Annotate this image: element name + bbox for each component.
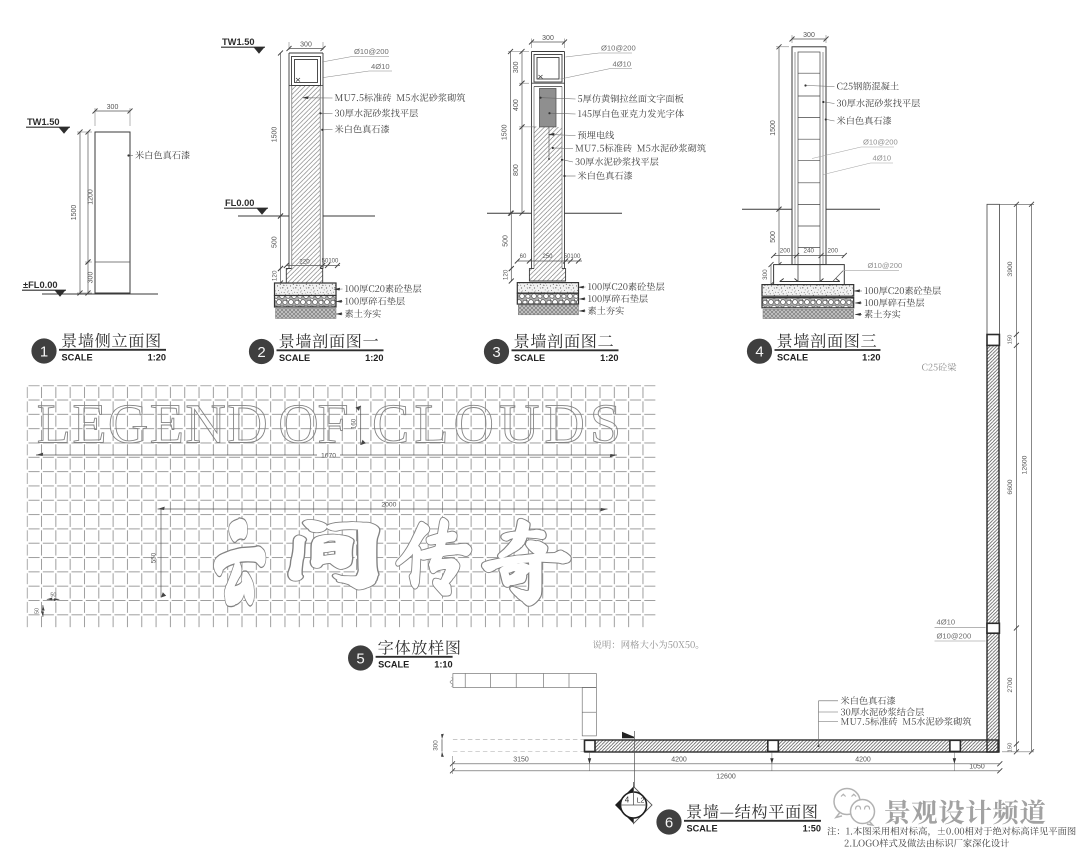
svg-text:500: 500 — [770, 231, 777, 243]
svg-text:1500: 1500 — [770, 120, 777, 136]
svg-text:120: 120 — [272, 270, 279, 281]
svg-text:150: 150 — [1008, 743, 1014, 753]
svg-text:1:20: 1:20 — [862, 353, 880, 363]
svg-text:3: 3 — [492, 344, 500, 361]
svg-text:1050: 1050 — [969, 764, 985, 771]
svg-text:250: 250 — [542, 254, 553, 260]
svg-text:240: 240 — [804, 248, 815, 255]
svg-text:6600: 6600 — [1007, 479, 1014, 494]
svg-text:4Ø10: 4Ø10 — [371, 62, 390, 71]
svg-text:60: 60 — [520, 254, 527, 260]
svg-text:4: 4 — [755, 344, 763, 361]
svg-text:50100: 50100 — [322, 259, 339, 265]
svg-text:OF: OF — [278, 394, 348, 456]
svg-text:12600: 12600 — [716, 773, 736, 780]
svg-text:4200: 4200 — [855, 757, 871, 764]
svg-text:300: 300 — [513, 61, 520, 73]
svg-text:2: 2 — [257, 344, 265, 361]
svg-text:2700: 2700 — [1007, 677, 1014, 692]
svg-text:150: 150 — [1008, 335, 1014, 345]
svg-text:Ø10@200: Ø10@200 — [868, 261, 903, 270]
svg-text:3900: 3900 — [1007, 261, 1014, 276]
svg-text:200: 200 — [827, 248, 838, 255]
svg-text:1200: 1200 — [88, 189, 95, 205]
svg-text:5: 5 — [356, 651, 364, 668]
svg-text:300: 300 — [300, 42, 312, 49]
svg-text:1500: 1500 — [71, 205, 78, 221]
svg-text:4: 4 — [625, 796, 630, 805]
svg-text:300: 300 — [107, 104, 119, 111]
svg-text:300: 300 — [88, 272, 95, 284]
svg-text:400: 400 — [513, 99, 520, 111]
svg-text:SCALE: SCALE — [279, 353, 310, 363]
svg-text:1500: 1500 — [502, 124, 509, 140]
svg-text:800: 800 — [513, 164, 520, 176]
svg-text:1:10: 1:10 — [434, 660, 452, 670]
svg-text:1: 1 — [40, 344, 48, 361]
svg-text:SCALE: SCALE — [687, 824, 718, 834]
svg-text:1:20: 1:20 — [600, 353, 618, 363]
svg-text:300: 300 — [433, 740, 440, 751]
svg-text:120: 120 — [502, 269, 509, 280]
svg-text:SCALE: SCALE — [777, 353, 808, 363]
svg-text:300: 300 — [542, 35, 554, 42]
svg-text:Ø10@200: Ø10@200 — [937, 632, 972, 641]
svg-text:500: 500 — [272, 236, 279, 248]
svg-text:4Ø10: 4Ø10 — [937, 618, 956, 627]
svg-text:1:50: 1:50 — [803, 824, 821, 834]
svg-text:50: 50 — [50, 593, 56, 599]
svg-text:1670: 1670 — [321, 453, 336, 460]
svg-text:200: 200 — [780, 248, 791, 255]
svg-text:4Ø10: 4Ø10 — [613, 60, 632, 69]
svg-text:±FL0.00: ±FL0.00 — [23, 280, 58, 290]
svg-text:LEGEND: LEGEND — [37, 394, 268, 456]
svg-text:6: 6 — [665, 815, 673, 832]
svg-text:SCALE: SCALE — [378, 660, 409, 670]
svg-text:50: 50 — [35, 608, 41, 614]
svg-text:550: 550 — [151, 552, 158, 563]
svg-text:Ø10@200: Ø10@200 — [601, 44, 636, 53]
svg-text:50100: 50100 — [564, 254, 581, 260]
svg-text:300: 300 — [803, 32, 815, 39]
svg-text:1500: 1500 — [272, 127, 279, 143]
svg-text:4200: 4200 — [671, 757, 687, 764]
svg-text:TW1.50: TW1.50 — [27, 117, 60, 127]
svg-text:Ø10@200: Ø10@200 — [354, 47, 389, 56]
svg-text:1:20: 1:20 — [365, 353, 383, 363]
svg-text:4Ø10: 4Ø10 — [873, 154, 892, 163]
svg-text:2000: 2000 — [381, 501, 396, 508]
svg-text:12600: 12600 — [1021, 455, 1028, 474]
svg-text:FL0.00: FL0.00 — [225, 198, 254, 208]
svg-text:300: 300 — [762, 269, 769, 280]
svg-text:160: 160 — [351, 418, 358, 429]
svg-text:TW1.50: TW1.50 — [222, 37, 255, 47]
svg-text:500: 500 — [502, 235, 509, 247]
svg-text:L2: L2 — [637, 798, 645, 805]
svg-text:3150: 3150 — [513, 757, 529, 764]
svg-text:220: 220 — [299, 259, 310, 266]
svg-text:Ø10@200: Ø10@200 — [863, 138, 898, 147]
svg-text:1:20: 1:20 — [148, 353, 166, 363]
svg-text:SCALE: SCALE — [514, 353, 545, 363]
svg-text:SCALE: SCALE — [62, 353, 93, 363]
